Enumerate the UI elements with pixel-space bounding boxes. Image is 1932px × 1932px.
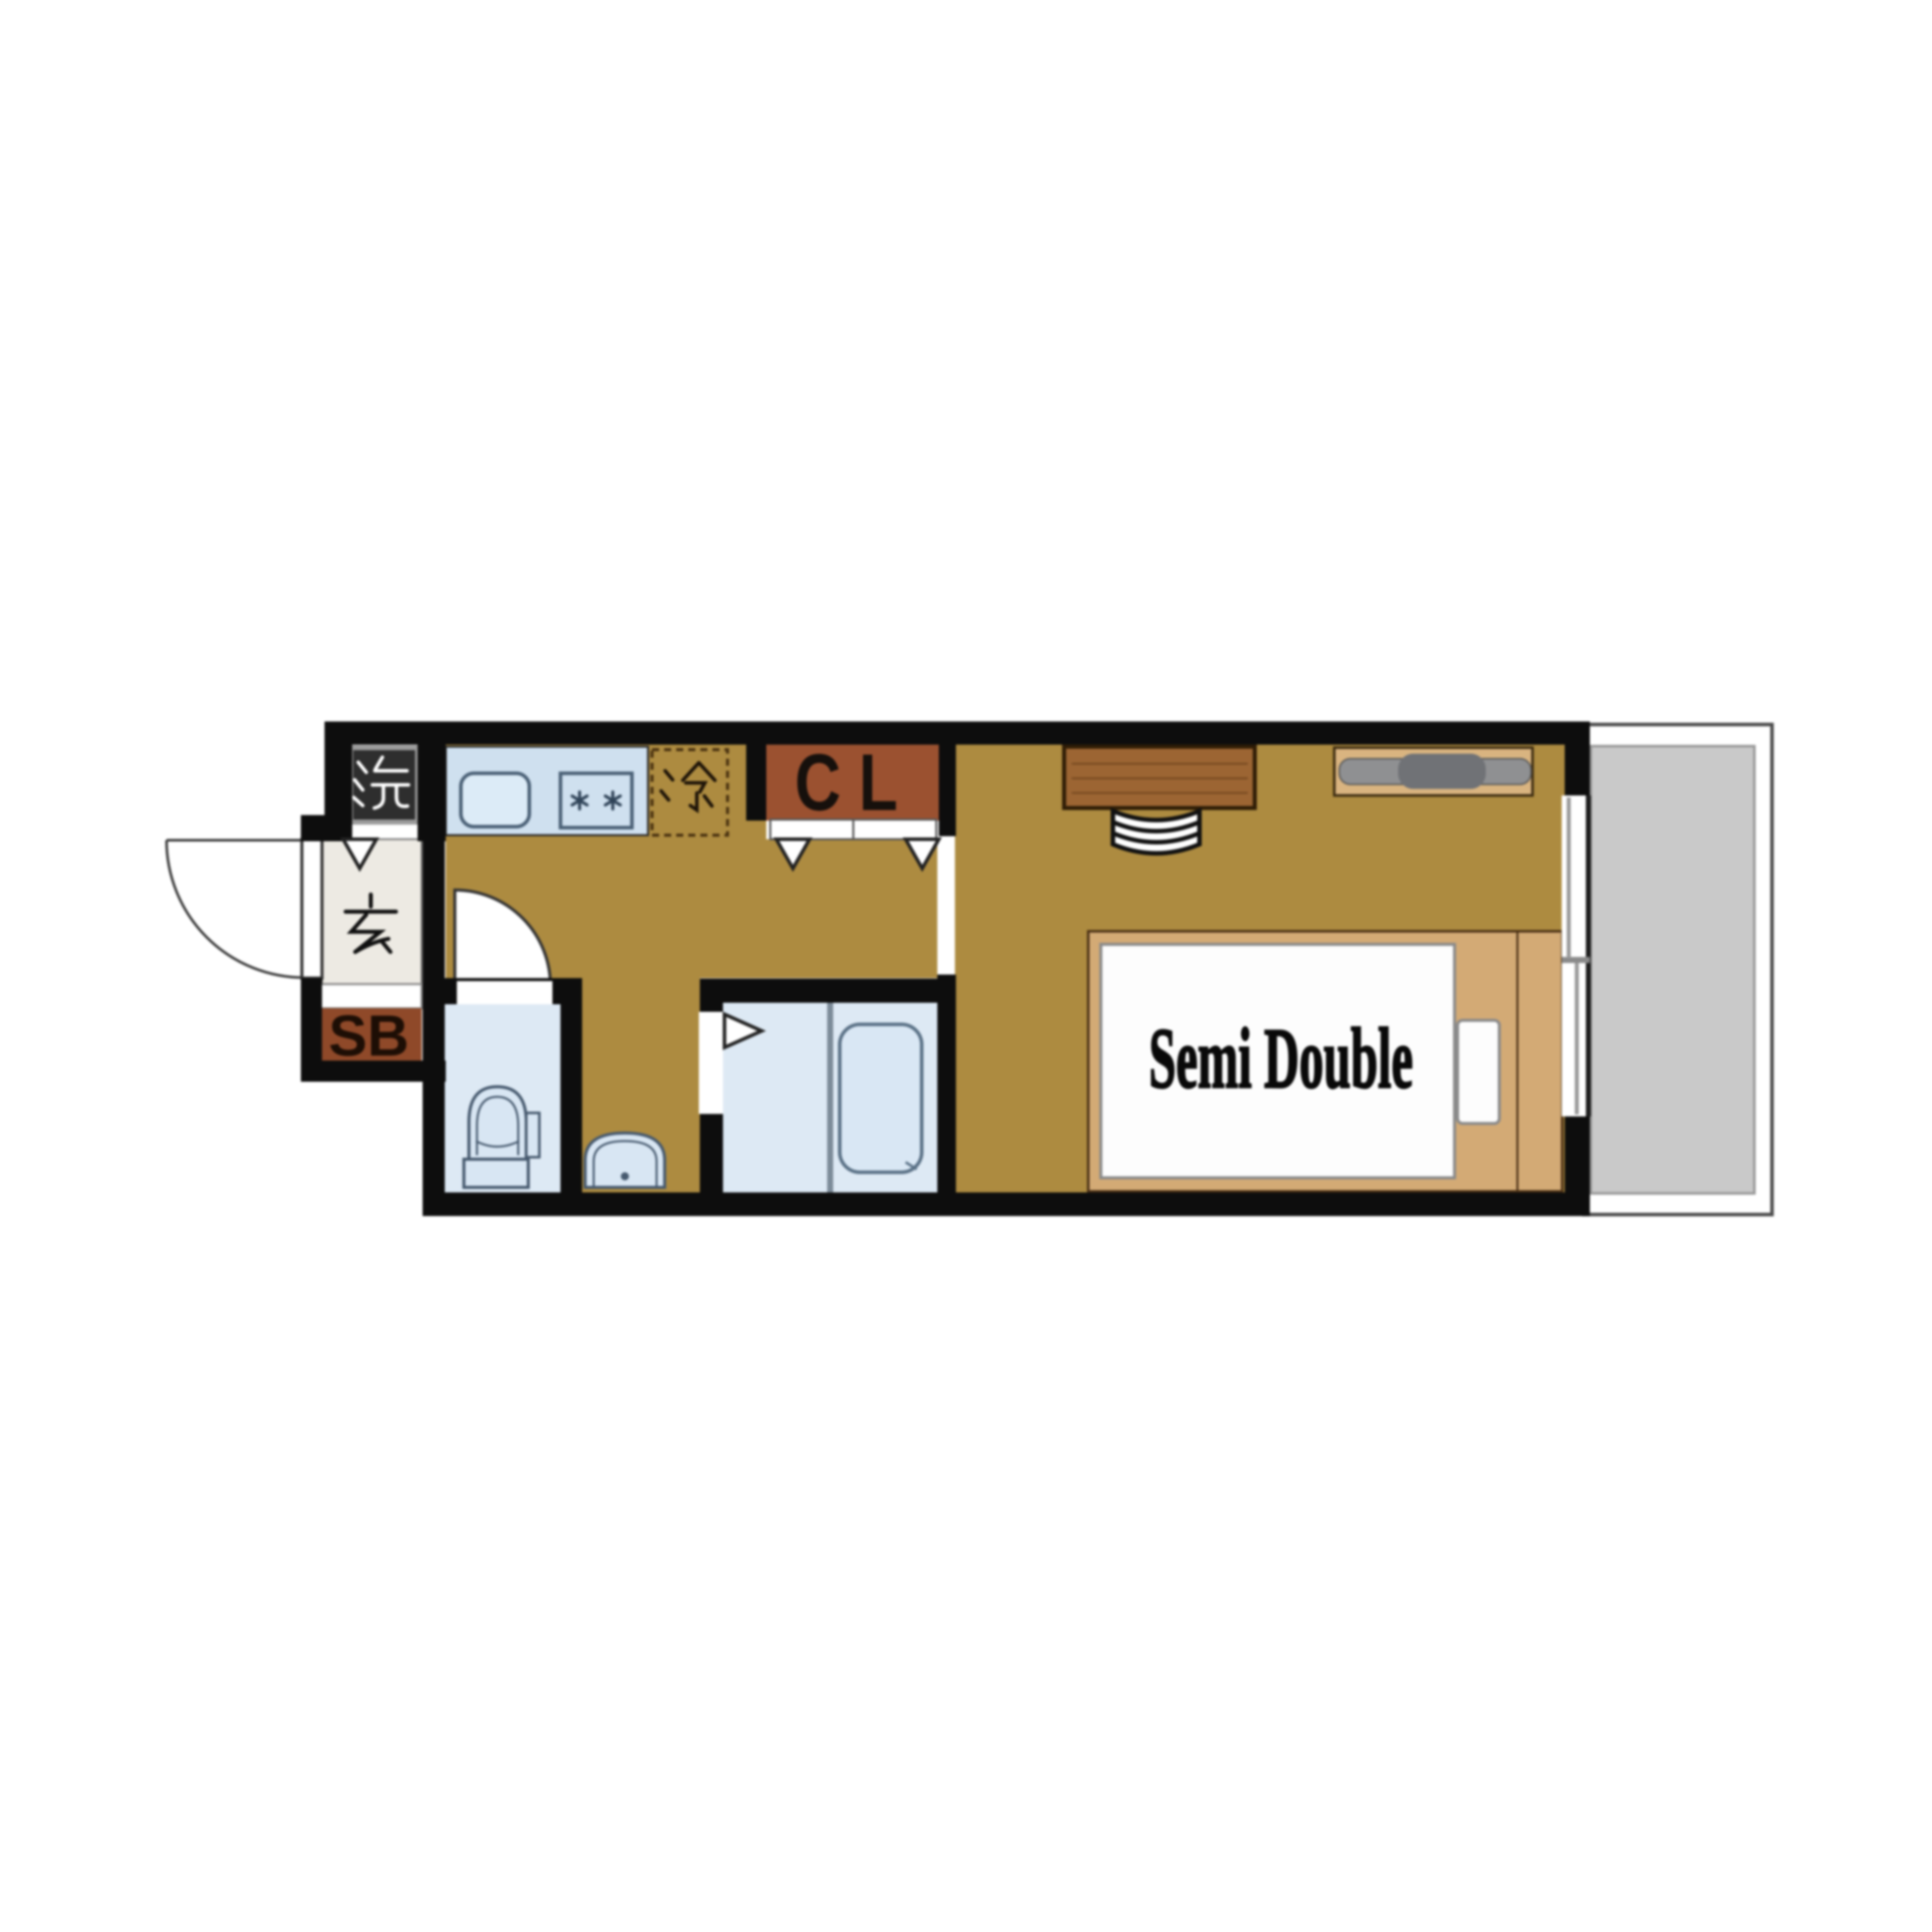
- svg-text:SB: SB: [329, 1004, 409, 1068]
- svg-text:Semi Double: Semi Double: [1149, 1011, 1413, 1106]
- svg-text:C L: C L: [795, 737, 898, 827]
